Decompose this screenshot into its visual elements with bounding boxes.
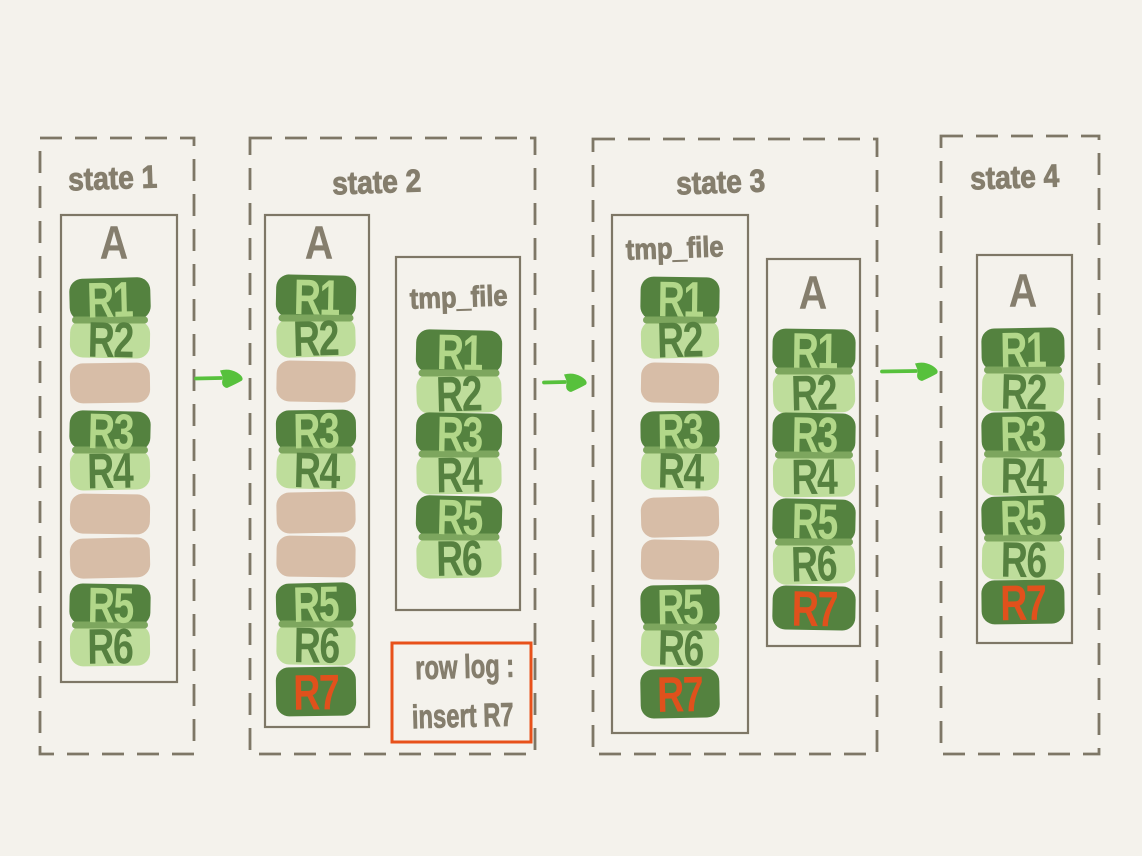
svg-text:R7: R7	[1000, 576, 1046, 632]
svg-text:tmp_file: tmp_file	[625, 230, 724, 266]
svg-text:R7: R7	[293, 665, 339, 721]
svg-text:A: A	[799, 268, 828, 320]
svg-text:state 4: state 4	[969, 159, 1060, 197]
svg-text:R2: R2	[656, 312, 702, 369]
svg-text:tmp_file: tmp_file	[409, 279, 508, 315]
svg-text:A: A	[100, 218, 129, 270]
svg-text:R4: R4	[657, 443, 705, 499]
svg-text:R2: R2	[292, 311, 339, 368]
svg-text:state 1: state 1	[67, 160, 157, 198]
svg-text:A: A	[305, 218, 334, 270]
svg-text:R7: R7	[791, 581, 837, 637]
svg-text:R6: R6	[87, 619, 133, 675]
svg-text:R4: R4	[293, 443, 341, 500]
svg-text:R6: R6	[436, 531, 482, 587]
svg-text:R4: R4	[87, 443, 135, 499]
svg-text:R2: R2	[87, 312, 133, 368]
svg-text:insert R7: insert R7	[411, 697, 514, 736]
svg-text:row log :: row log :	[415, 648, 515, 687]
svg-text:R7: R7	[657, 667, 703, 723]
svg-text:A: A	[1009, 266, 1038, 318]
svg-text:state 3: state 3	[675, 164, 765, 202]
svg-text:state 2: state 2	[331, 164, 421, 202]
